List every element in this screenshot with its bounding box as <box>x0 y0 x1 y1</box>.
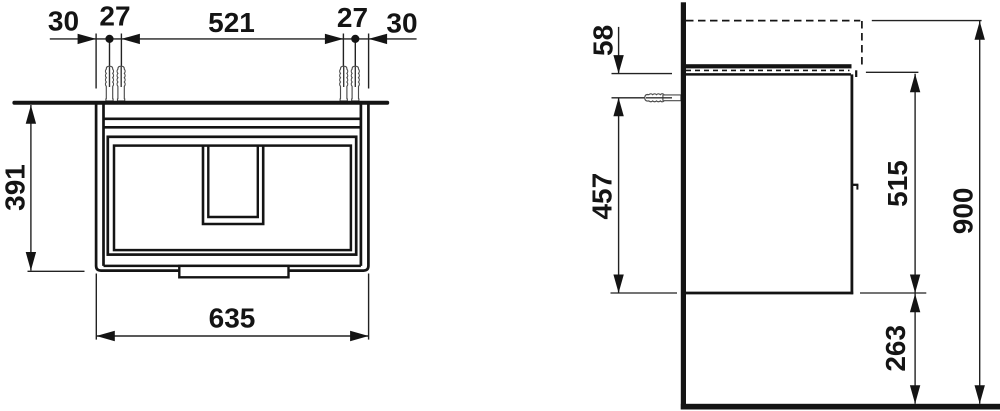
svg-text:58: 58 <box>587 25 618 56</box>
svg-text:27: 27 <box>337 2 368 33</box>
svg-text:521: 521 <box>208 7 255 38</box>
svg-text:635: 635 <box>209 303 256 334</box>
svg-text:900: 900 <box>948 188 979 235</box>
svg-text:30: 30 <box>48 6 79 37</box>
svg-text:263: 263 <box>880 325 911 372</box>
svg-text:391: 391 <box>0 164 30 211</box>
svg-text:515: 515 <box>882 160 913 207</box>
svg-text:27: 27 <box>99 1 130 32</box>
svg-text:457: 457 <box>587 173 618 220</box>
svg-text:30: 30 <box>386 8 417 39</box>
